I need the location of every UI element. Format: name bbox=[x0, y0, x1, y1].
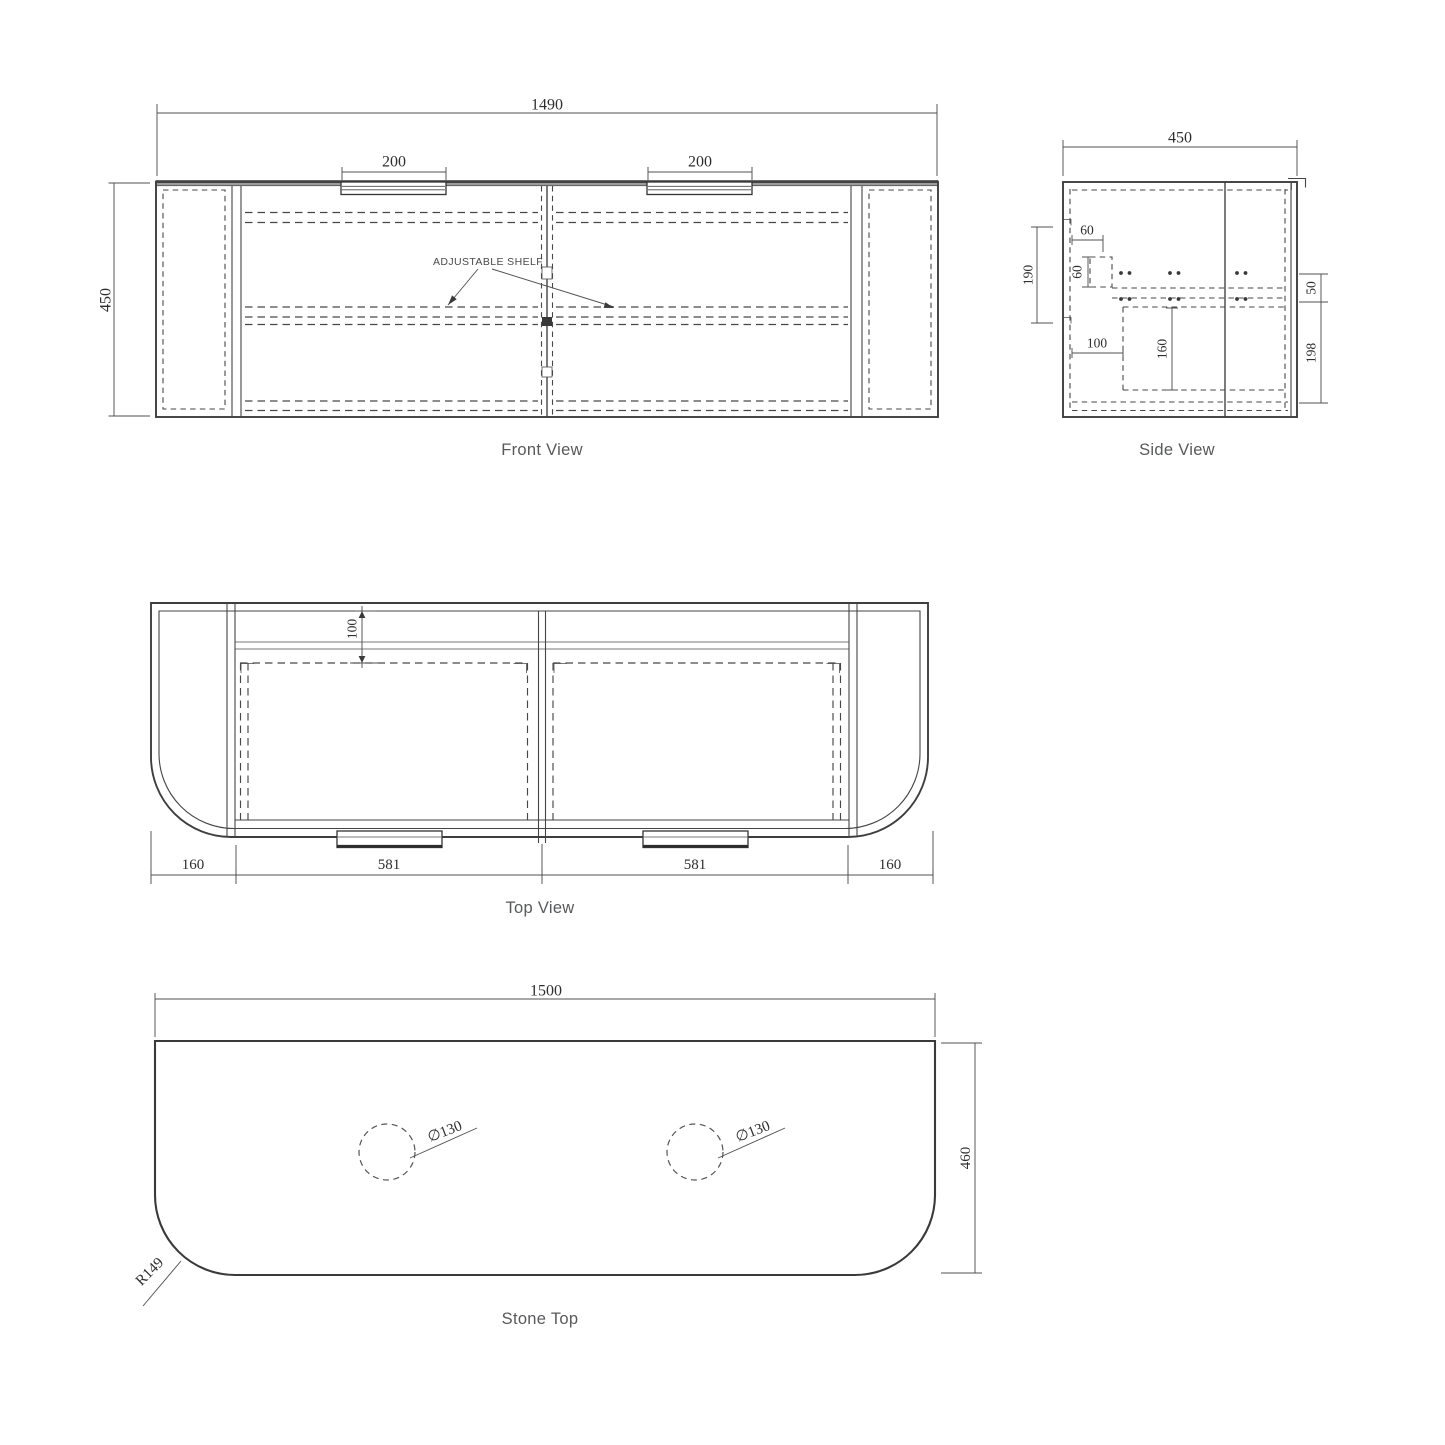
stone-dim-radius: R149 bbox=[133, 1255, 181, 1306]
top-dim-drawer-left-label: 581 bbox=[378, 857, 401, 873]
side-dim-depth: 450 bbox=[1063, 130, 1297, 177]
front-dim-height-label: 450 bbox=[98, 288, 115, 312]
front-dim-width: 1490 bbox=[157, 97, 937, 177]
vanity-technical-drawing: 1490 200 200 450 ADJUSTABLE SHELF Front … bbox=[0, 0, 1445, 1445]
side-dim-60h-label: 60 bbox=[1080, 223, 1094, 238]
side-dim-depth-label: 450 bbox=[1168, 130, 1192, 147]
side-dim-60v-label: 60 bbox=[1070, 265, 1085, 279]
front-view-center-join bbox=[542, 186, 553, 417]
adjustable-shelf-label: ADJUSTABLE SHELF bbox=[433, 256, 543, 268]
side-dim-160: 160 bbox=[1155, 308, 1179, 390]
front-shelf-note: ADJUSTABLE SHELF bbox=[433, 256, 614, 308]
side-dim-198: 198 bbox=[1299, 302, 1328, 403]
front-dim-width-label: 1490 bbox=[531, 97, 563, 114]
stone-top-view: ∅130 ∅130 1500 460 R149 Stone Top bbox=[133, 983, 982, 1329]
top-dim-100: 100 bbox=[345, 606, 381, 668]
side-dim-50: 50 bbox=[1299, 274, 1328, 302]
top-view-handle-right bbox=[643, 831, 748, 848]
technical-drawing-canvas: 1490 200 200 450 ADJUSTABLE SHELF Front … bbox=[0, 0, 1445, 1445]
top-view-drawer-dashes bbox=[240, 663, 841, 820]
front-dim-height: 450 bbox=[98, 183, 151, 416]
stone-tap-hole-right: ∅130 bbox=[667, 1118, 785, 1180]
top-dim-left-end-label: 160 bbox=[182, 857, 205, 873]
top-dim-right-end-label: 160 bbox=[879, 857, 902, 873]
stone-dim-depth-label: 460 bbox=[958, 1147, 974, 1170]
stone-top-title: Stone Top bbox=[502, 1310, 579, 1328]
side-dim-190: 190 bbox=[1021, 227, 1054, 323]
front-view: 1490 200 200 450 ADJUSTABLE SHELF Front … bbox=[98, 97, 939, 460]
front-dim-handle-right-label: 200 bbox=[688, 154, 712, 171]
side-dim-100: 100 bbox=[1072, 336, 1123, 359]
top-dim-100-label: 100 bbox=[345, 619, 360, 640]
stone-tap-hole-left: ∅130 bbox=[359, 1118, 477, 1180]
side-dim-198-label: 198 bbox=[1304, 343, 1319, 364]
top-cabinet-outline bbox=[151, 603, 928, 837]
side-view-title: Side View bbox=[1139, 441, 1215, 459]
front-dim-handle-right: 200 bbox=[648, 154, 752, 181]
side-view-fixing-holes bbox=[1119, 271, 1247, 301]
side-dim-100-label: 100 bbox=[1087, 336, 1108, 351]
stone-hole-left-label: ∅130 bbox=[426, 1118, 465, 1146]
top-view-outline bbox=[151, 603, 928, 843]
top-view-title: Top View bbox=[505, 899, 574, 917]
side-view: 450 190 60 60 100 160 50 198 S bbox=[1021, 130, 1329, 460]
stone-top-outline bbox=[155, 1041, 935, 1275]
front-view-title: Front View bbox=[501, 441, 583, 459]
top-bottom-dims: 160 581 581 160 bbox=[151, 831, 933, 884]
top-view-handle-left bbox=[337, 831, 442, 848]
side-dim-50-label: 50 bbox=[1304, 281, 1319, 295]
side-dim-190-label: 190 bbox=[1021, 265, 1036, 286]
front-dim-handle-left-label: 200 bbox=[382, 154, 406, 171]
stone-dim-width: 1500 bbox=[155, 983, 935, 1038]
stone-dim-width-label: 1500 bbox=[530, 983, 562, 1000]
stone-dim-depth: 460 bbox=[941, 1043, 982, 1273]
front-dim-handle-left: 200 bbox=[342, 154, 446, 181]
side-dim-160-label: 160 bbox=[1155, 339, 1170, 360]
front-door-handle-right bbox=[647, 182, 752, 195]
side-dim-60-horizontal: 60 bbox=[1072, 223, 1103, 253]
top-view: 100 160 581 581 160 Top View bbox=[151, 603, 933, 917]
front-door-handle-left bbox=[341, 182, 446, 195]
stone-hole-right-label: ∅130 bbox=[734, 1118, 773, 1146]
top-dim-drawer-right-label: 581 bbox=[684, 857, 707, 873]
